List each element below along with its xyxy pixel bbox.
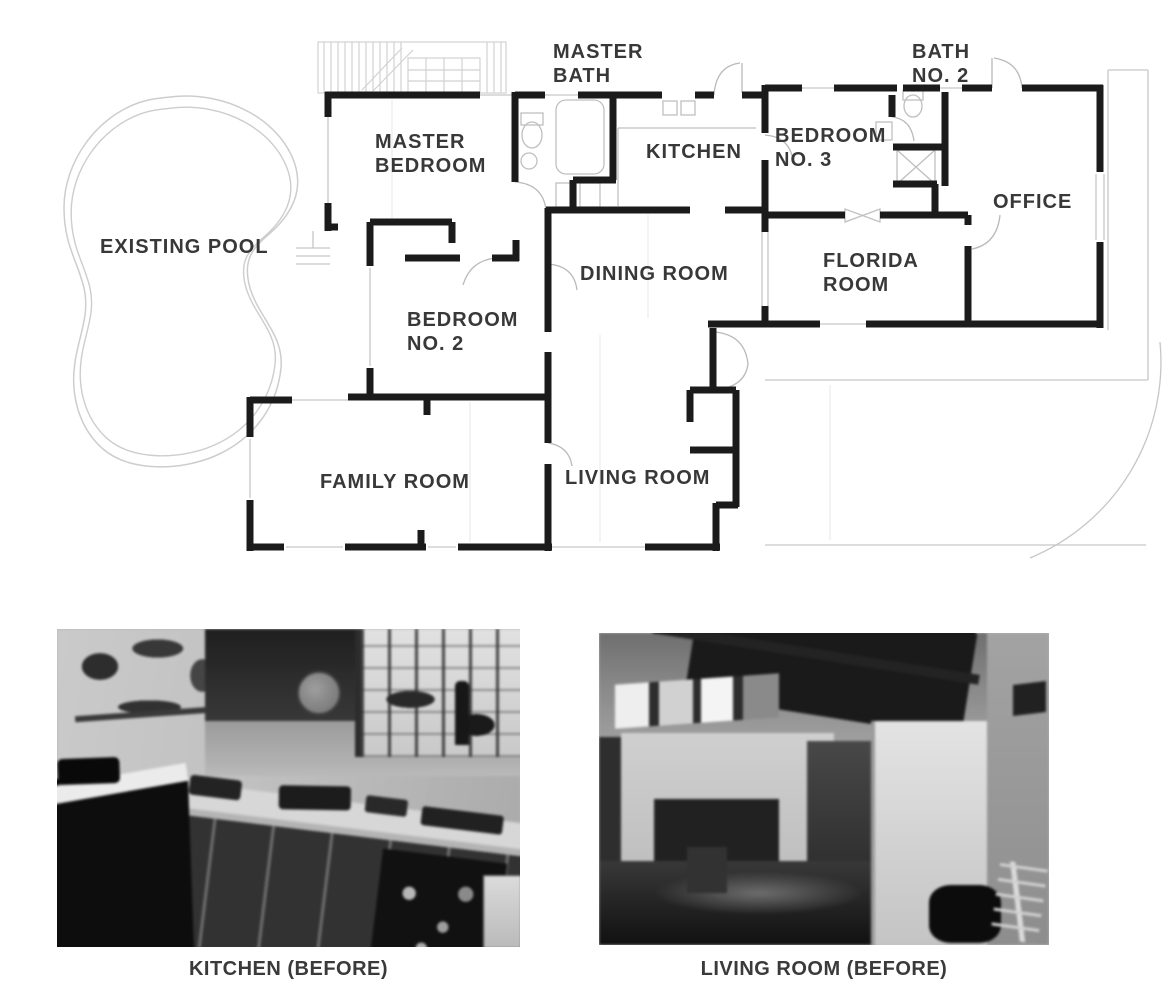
room-label-master-bath-2: BATH (553, 65, 611, 87)
pantry-2 (580, 183, 600, 207)
kitchen-before-photo (57, 629, 520, 947)
cooktop-2 (681, 101, 695, 115)
living-room-photo-caption: LIVING ROOM (BEFORE) (599, 958, 1049, 981)
deck-hatching (318, 42, 506, 93)
kitchen-wall-plate (297, 671, 341, 715)
floor-light-patch (654, 871, 864, 915)
kitchen-stove (57, 775, 194, 947)
room-label-bedroom2-1: BEDROOM (407, 309, 518, 331)
sink-master (521, 153, 537, 169)
kitchen-dishwasher (483, 875, 520, 947)
room-label-bath2-2: NO. 2 (912, 65, 969, 87)
room-label-existing-pool: EXISTING POOL (100, 236, 269, 258)
stove-pot (57, 757, 120, 785)
kitchen-counter (618, 128, 756, 206)
pool-outline (64, 96, 298, 467)
living-photo-art (599, 633, 1049, 945)
tub (556, 100, 604, 174)
room-label-florida-room-1: FLORIDA (823, 250, 919, 272)
room-label-kitchen: KITCHEN (646, 141, 742, 163)
room-label-bedroom3-1: BEDROOM (775, 125, 886, 147)
room-label-dining-room: DINING ROOM (580, 263, 729, 285)
room-label-family-room: FAMILY ROOM (320, 471, 470, 493)
kitchen-photo-art (57, 629, 520, 947)
room-label-master-bedroom-1: MASTER (375, 131, 465, 153)
room-label-bath2-1: BATH (912, 41, 970, 63)
counter-clutter-2 (279, 785, 351, 810)
floor-plan: EXISTING POOL MASTER BATH BATH NO. 2 MAS… (0, 0, 1165, 618)
room-label-office: OFFICE (993, 191, 1072, 213)
room-label-living-room: LIVING ROOM (565, 467, 710, 489)
room-label-bedroom3-2: NO. 3 (775, 149, 832, 171)
toilet-master (522, 122, 542, 148)
living-room-before-photo (599, 633, 1049, 945)
shower-x (897, 150, 935, 184)
kitchen-photo-caption: KITCHEN (BEFORE) (57, 958, 520, 981)
toilet-tank-master (521, 113, 543, 125)
right-wall-vent (1013, 681, 1046, 716)
room-label-bedroom2-2: NO. 2 (407, 333, 464, 355)
toilet-bath2 (904, 95, 922, 117)
floor-box (687, 847, 727, 893)
renovation-plan-page: EXISTING POOL MASTER BATH BATH NO. 2 MAS… (0, 0, 1165, 1000)
casement-window (845, 209, 880, 222)
cooktop-1 (663, 101, 677, 115)
room-labels: EXISTING POOL MASTER BATH BATH NO. 2 MAS… (100, 41, 1072, 493)
room-label-master-bath-1: MASTER (553, 41, 643, 63)
kitchen-window-bottle (455, 681, 469, 745)
room-label-florida-room-2: ROOM (823, 274, 889, 296)
kitchen-window (355, 629, 520, 757)
room-label-master-bedroom-2: BEDROOM (375, 155, 486, 177)
